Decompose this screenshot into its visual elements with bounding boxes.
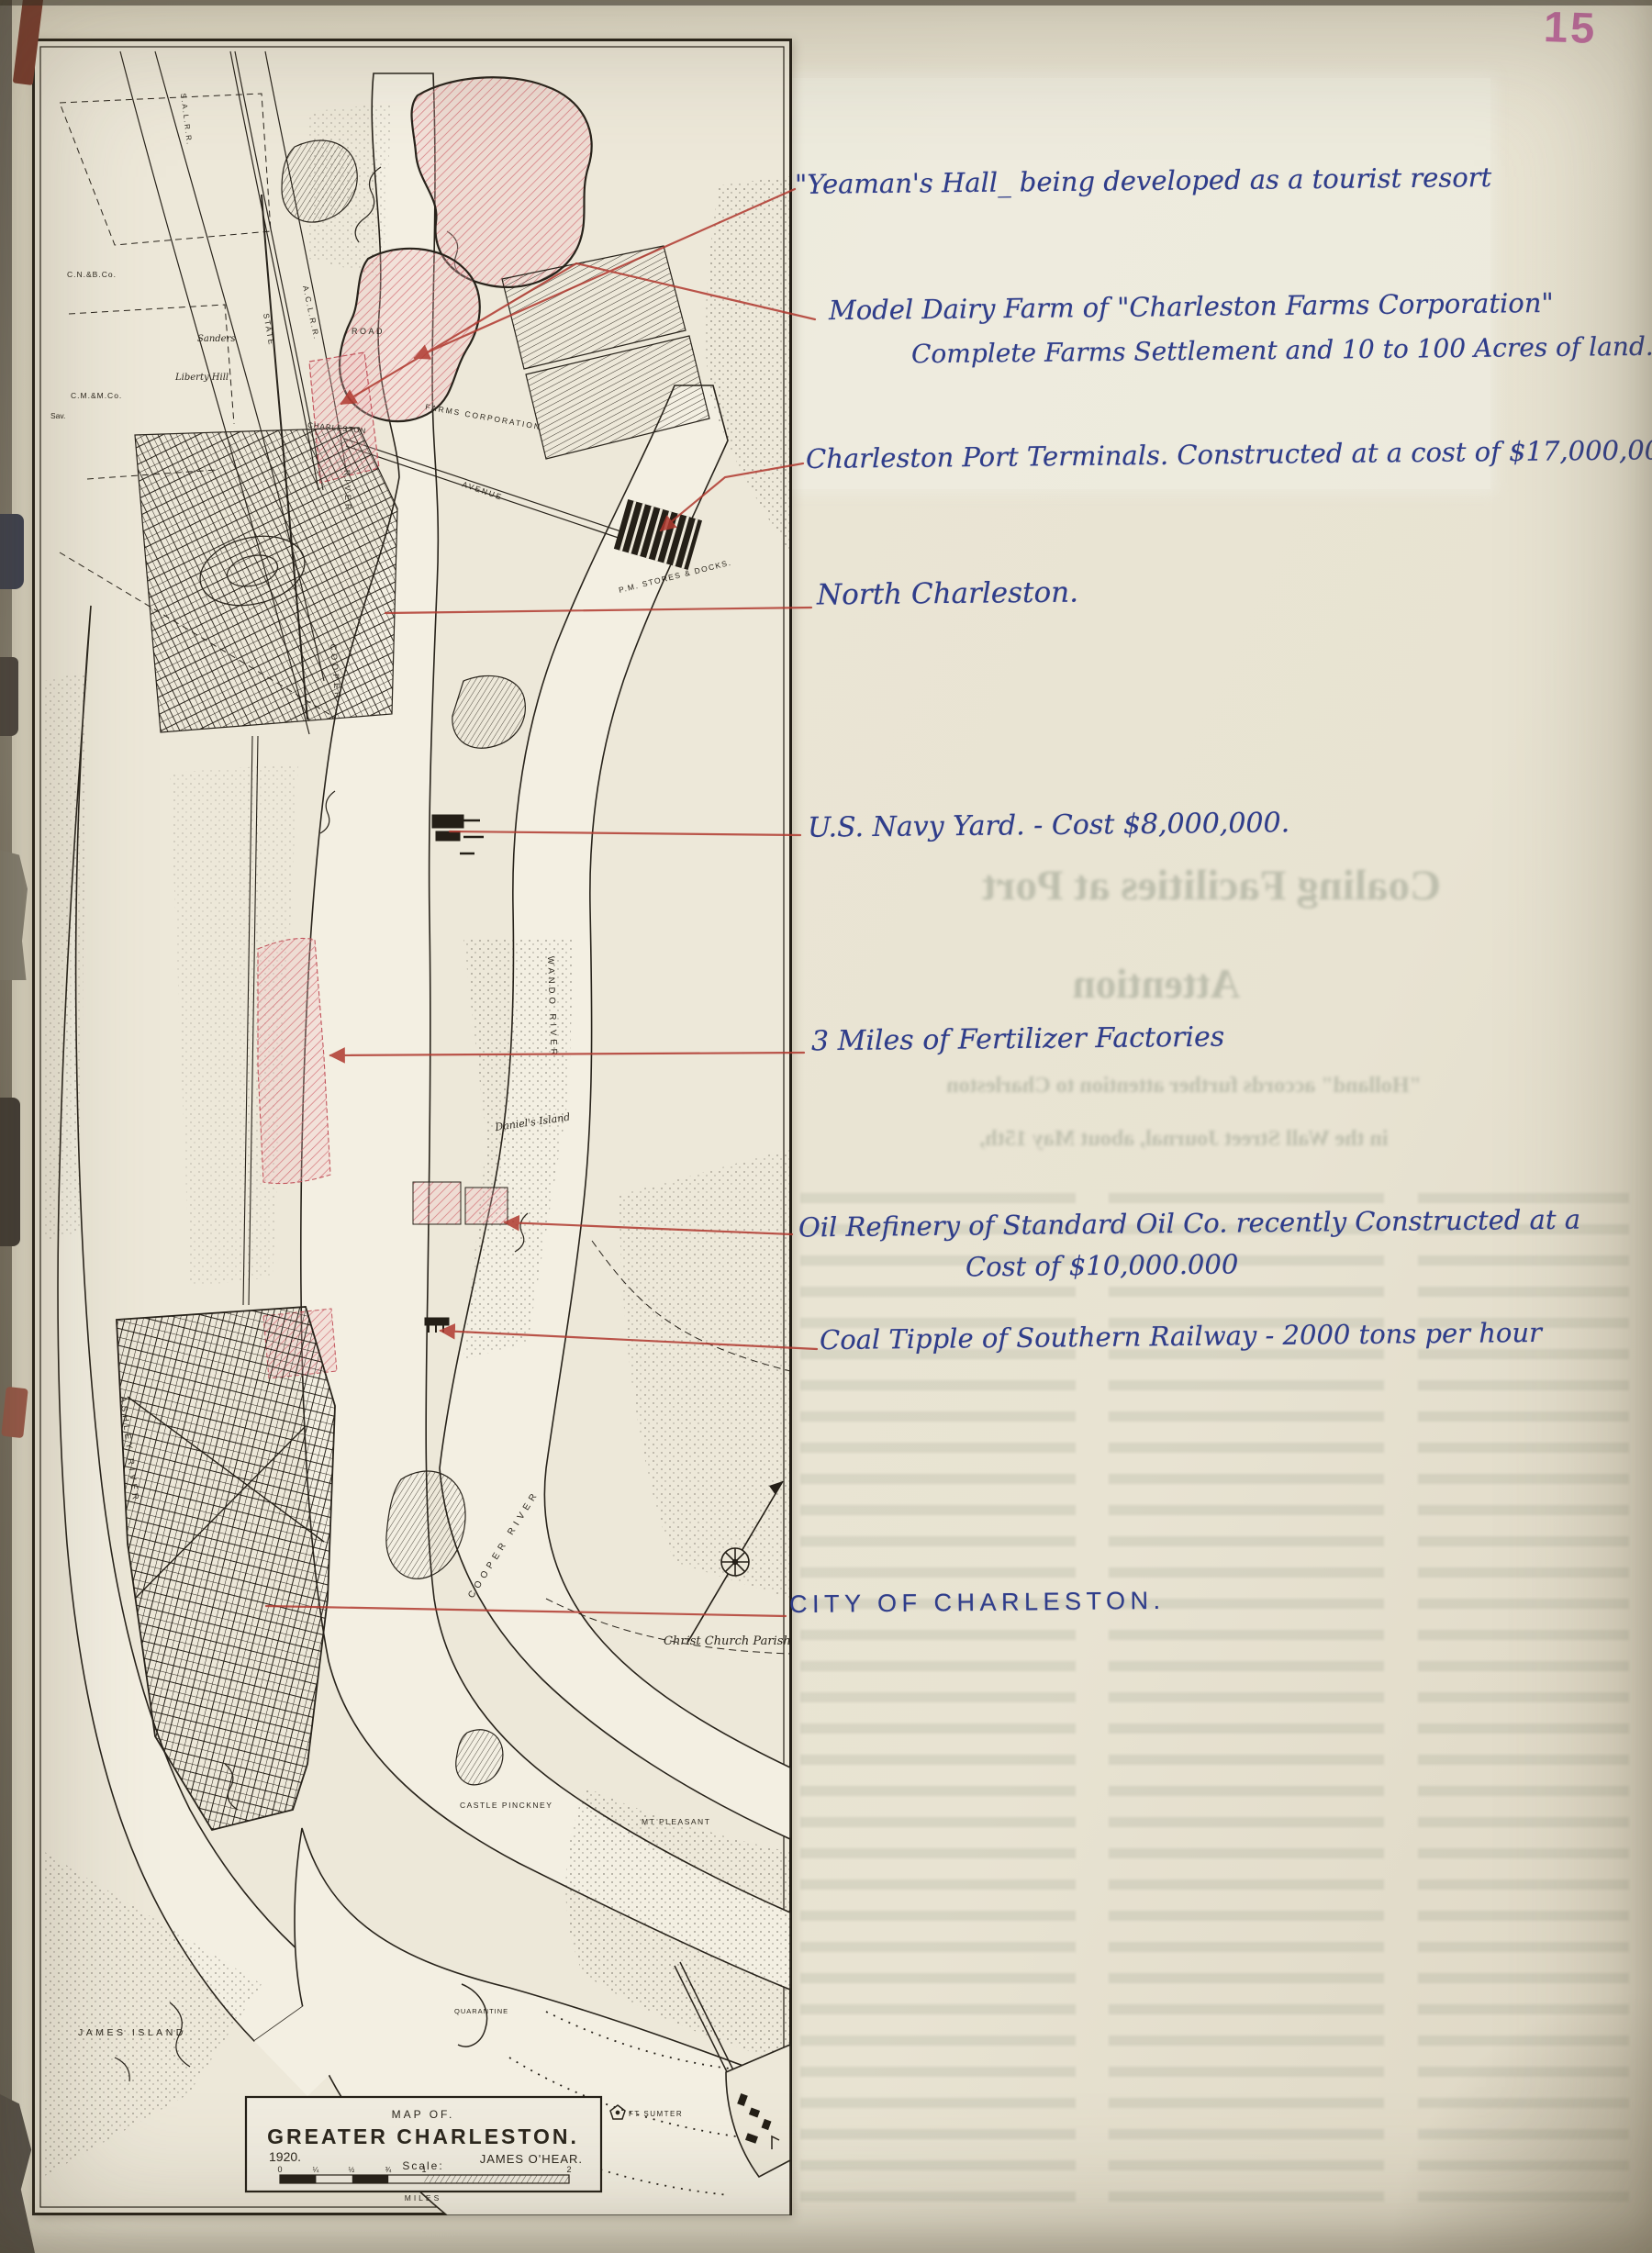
north-charleston-grid [135, 428, 397, 732]
annotation-fertilizer: 3 Miles of Fertilizer Factories [811, 1021, 1224, 1058]
bleed-subhead-2: in the Wall Street Journal, about May 15… [803, 1127, 1565, 1152]
bleed-headline-2: Attention [808, 960, 1505, 1008]
bleed-subhead-1: "Holland" accords further attention to C… [803, 1074, 1565, 1099]
title-box-year: 1920. [269, 2149, 301, 2164]
map-title-box: MAP OF. GREATER CHARLESTON. 1920. JAMES … [246, 2097, 601, 2203]
annotation-oil-refinery-line1: Oil Refinery of Standard Oil Co. recentl… [798, 1204, 1580, 1244]
annotation-city-of-charleston: CITY OF CHARLESTON. [789, 1587, 1166, 1619]
scale-tick: 2 [566, 2165, 571, 2174]
scale-tick: 1 [421, 2165, 426, 2174]
paper-fragment [1, 1387, 28, 1438]
label-sav: Sav. [50, 411, 65, 420]
annotation-navy-yard: U.S. Navy Yard. - Cost $8,000,000. [808, 807, 1289, 843]
label-liberty-hill: Liberty Hill [174, 373, 229, 383]
bleed-headline: Coaling Facilities at Port [798, 861, 1624, 910]
annotation-coal-tipple: Coal Tipple of Southern Railway - 2000 t… [820, 1317, 1542, 1355]
greater-charleston-map: MAP OF. GREATER CHARLESTON. 1920. JAMES … [32, 39, 792, 2215]
label-castle-pinckney: CASTLE PINCKNEY [460, 1801, 553, 1810]
title-box-author: JAMES O'HEAR. [480, 2152, 583, 2166]
paper-fragment [0, 657, 18, 736]
annotation-north-charleston: North Charleston. [817, 576, 1078, 612]
title-box-map-of: MAP OF. [392, 2108, 455, 2121]
title-box-title: GREATER CHARLESTON. [267, 2125, 579, 2148]
label-christ-church-parish: Christ Church Parish [664, 1634, 791, 1648]
scale-tick: ½ [349, 2166, 355, 2174]
paper-fragment [0, 850, 28, 980]
label-mt-pleasant: MT PLEASANT [642, 1817, 710, 1826]
paper-fragment [0, 1098, 20, 1246]
paper-fragment [0, 514, 24, 589]
paper-fragment [0, 2094, 35, 2253]
label-cmm-co: C.M.&M.Co. [71, 391, 122, 400]
corner-shadow [1358, 1978, 1652, 2253]
label-river-upper: RIVER [342, 470, 353, 514]
annotation-model-dairy-line2: Complete Farms Settlement and 10 to 100 … [911, 331, 1652, 369]
title-box-miles: MILES [405, 2193, 442, 2203]
scale-tick: ¼ [313, 2166, 319, 2174]
label-quarantine: QUARANTINE [454, 2007, 508, 2015]
pasted-paper-patch [787, 78, 1490, 489]
label-road: ROAD [352, 327, 385, 336]
label-sanders: Sanders [197, 334, 235, 344]
photo-top-edge [0, 0, 1652, 6]
map-drawing: MAP OF. GREATER CHARLESTON. 1920. JAMES … [32, 39, 792, 2215]
page-number: 15 [1543, 1, 1598, 53]
label-james-island: JAMES ISLAND [78, 2027, 186, 2038]
annotation-oil-refinery-line2: Cost of $10,000.000 [966, 1248, 1239, 1282]
label-ft-sumter: FT SUMTER [629, 2110, 683, 2118]
label-cnb-co: C.N.&B.Co. [67, 270, 117, 279]
scrapbook-page: Coaling Facilities at Port Attention "Ho… [0, 0, 1652, 2253]
scale-tick: ¾ [385, 2166, 392, 2174]
scale-tick: 0 [277, 2165, 282, 2174]
